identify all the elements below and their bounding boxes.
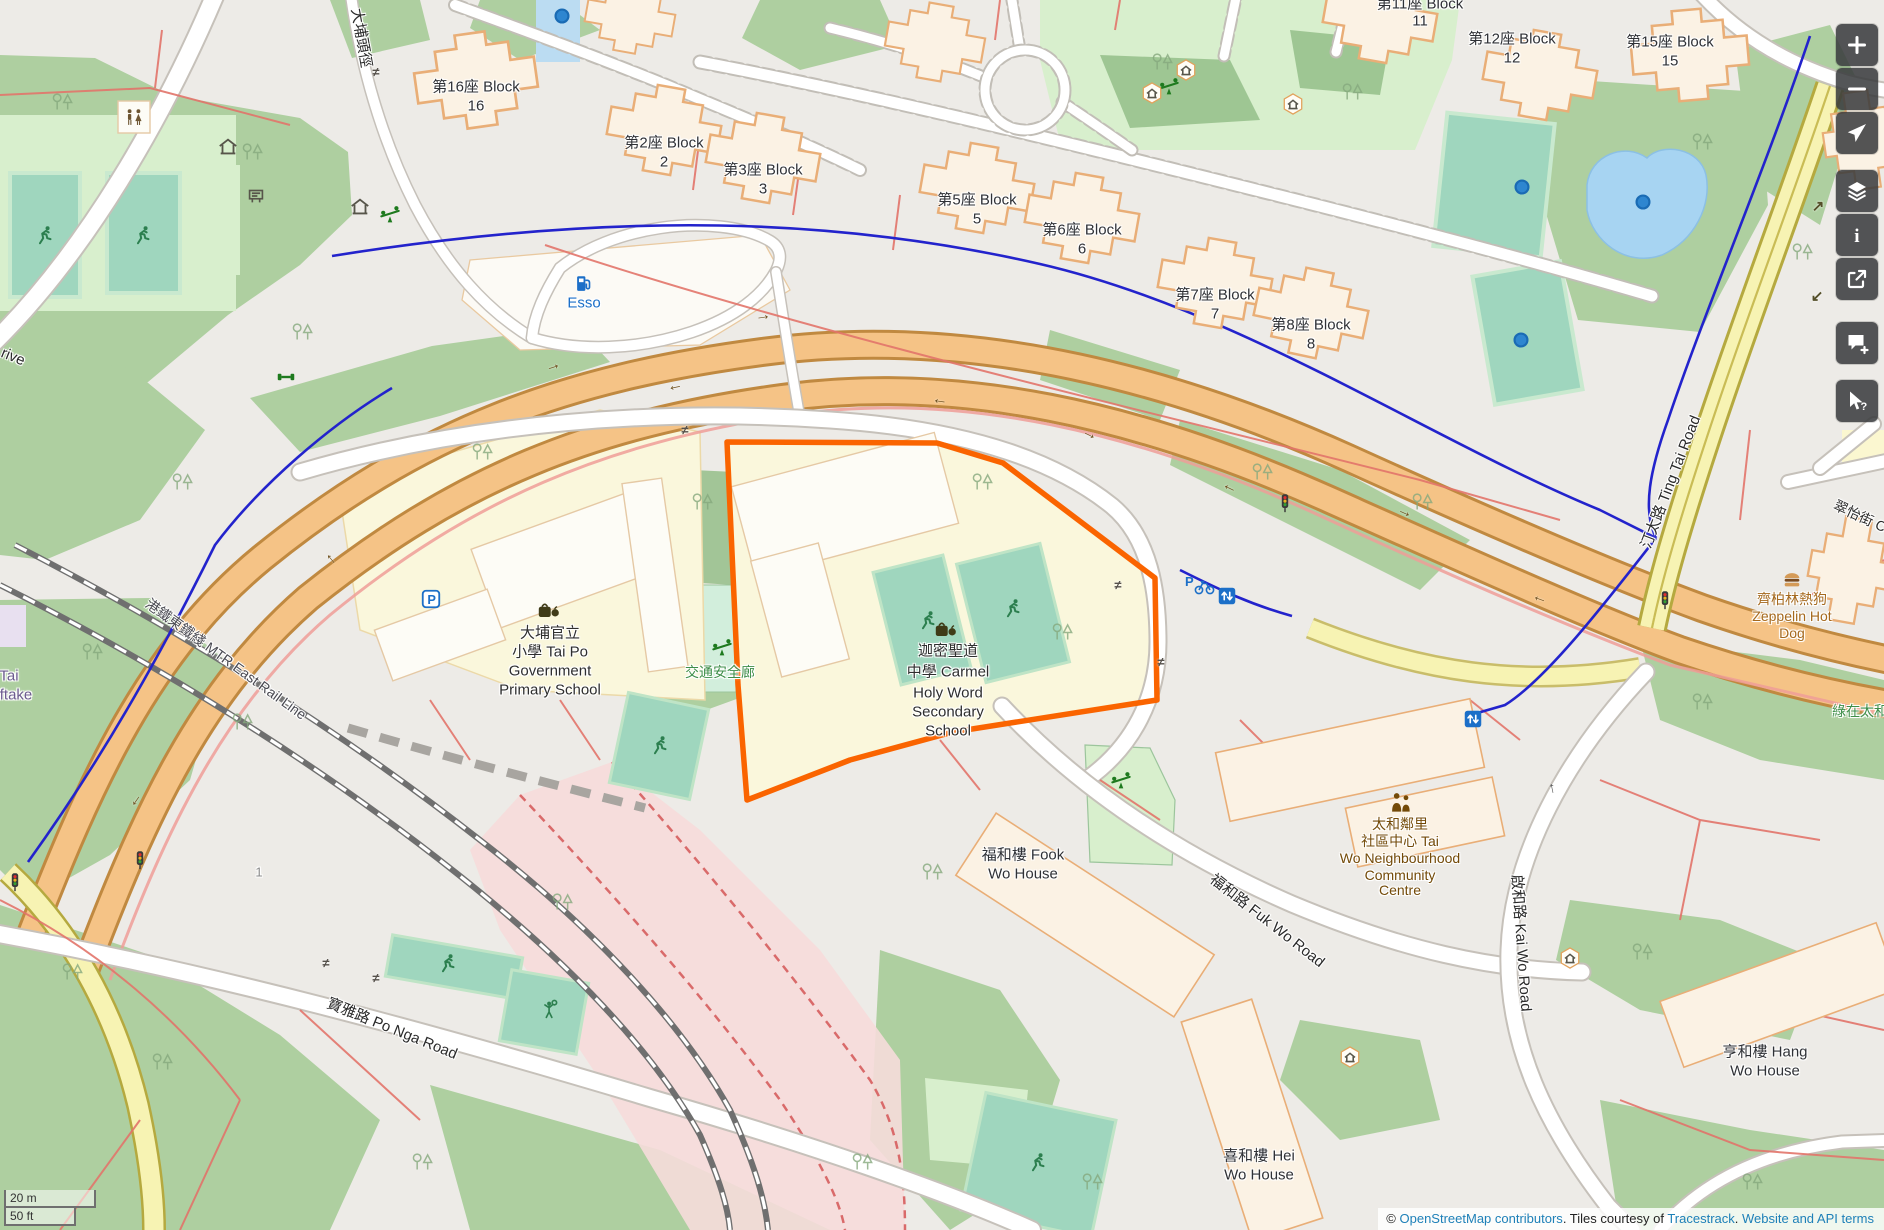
osm-contributors-link[interactable]: OpenStreetMap contributors [1400, 1211, 1563, 1226]
attribution-copyright: © [1386, 1211, 1399, 1226]
locate-icon [1845, 121, 1869, 145]
share-icon [1845, 267, 1869, 291]
layers-button[interactable] [1836, 170, 1878, 212]
scale-metric: 20 m [4, 1190, 96, 1208]
attribution-bar: © OpenStreetMap contributors. Tiles cour… [1378, 1208, 1884, 1230]
zoom-out-button[interactable] [1836, 68, 1878, 110]
tracestrack-link[interactable]: Tracestrack [1667, 1211, 1734, 1226]
note-icon [1845, 331, 1869, 355]
scale-bar: 20 m 50 ft [4, 1190, 96, 1226]
scale-imperial: 50 ft [4, 1208, 76, 1226]
query-features-button[interactable] [1836, 380, 1878, 422]
zoom-in-button[interactable] [1836, 24, 1878, 66]
map-canvas[interactable]: P P i [0, 0, 1884, 1230]
info-icon [1845, 223, 1869, 247]
minus-icon [1845, 77, 1869, 101]
share-button[interactable] [1836, 258, 1878, 300]
map-tiles: P P i [0, 0, 1884, 1230]
attribution-sep: . [1735, 1211, 1742, 1226]
plus-icon [1845, 33, 1869, 57]
map-key-button[interactable] [1836, 214, 1878, 256]
attribution-mid: . Tiles courtesy of [1563, 1211, 1668, 1226]
show-location-button[interactable] [1836, 112, 1878, 154]
map-controls [1836, 0, 1880, 1230]
query-icon [1845, 389, 1869, 413]
terms-link[interactable]: Website and API terms [1742, 1211, 1874, 1226]
layers-icon [1845, 179, 1869, 203]
add-note-button[interactable] [1836, 322, 1878, 364]
